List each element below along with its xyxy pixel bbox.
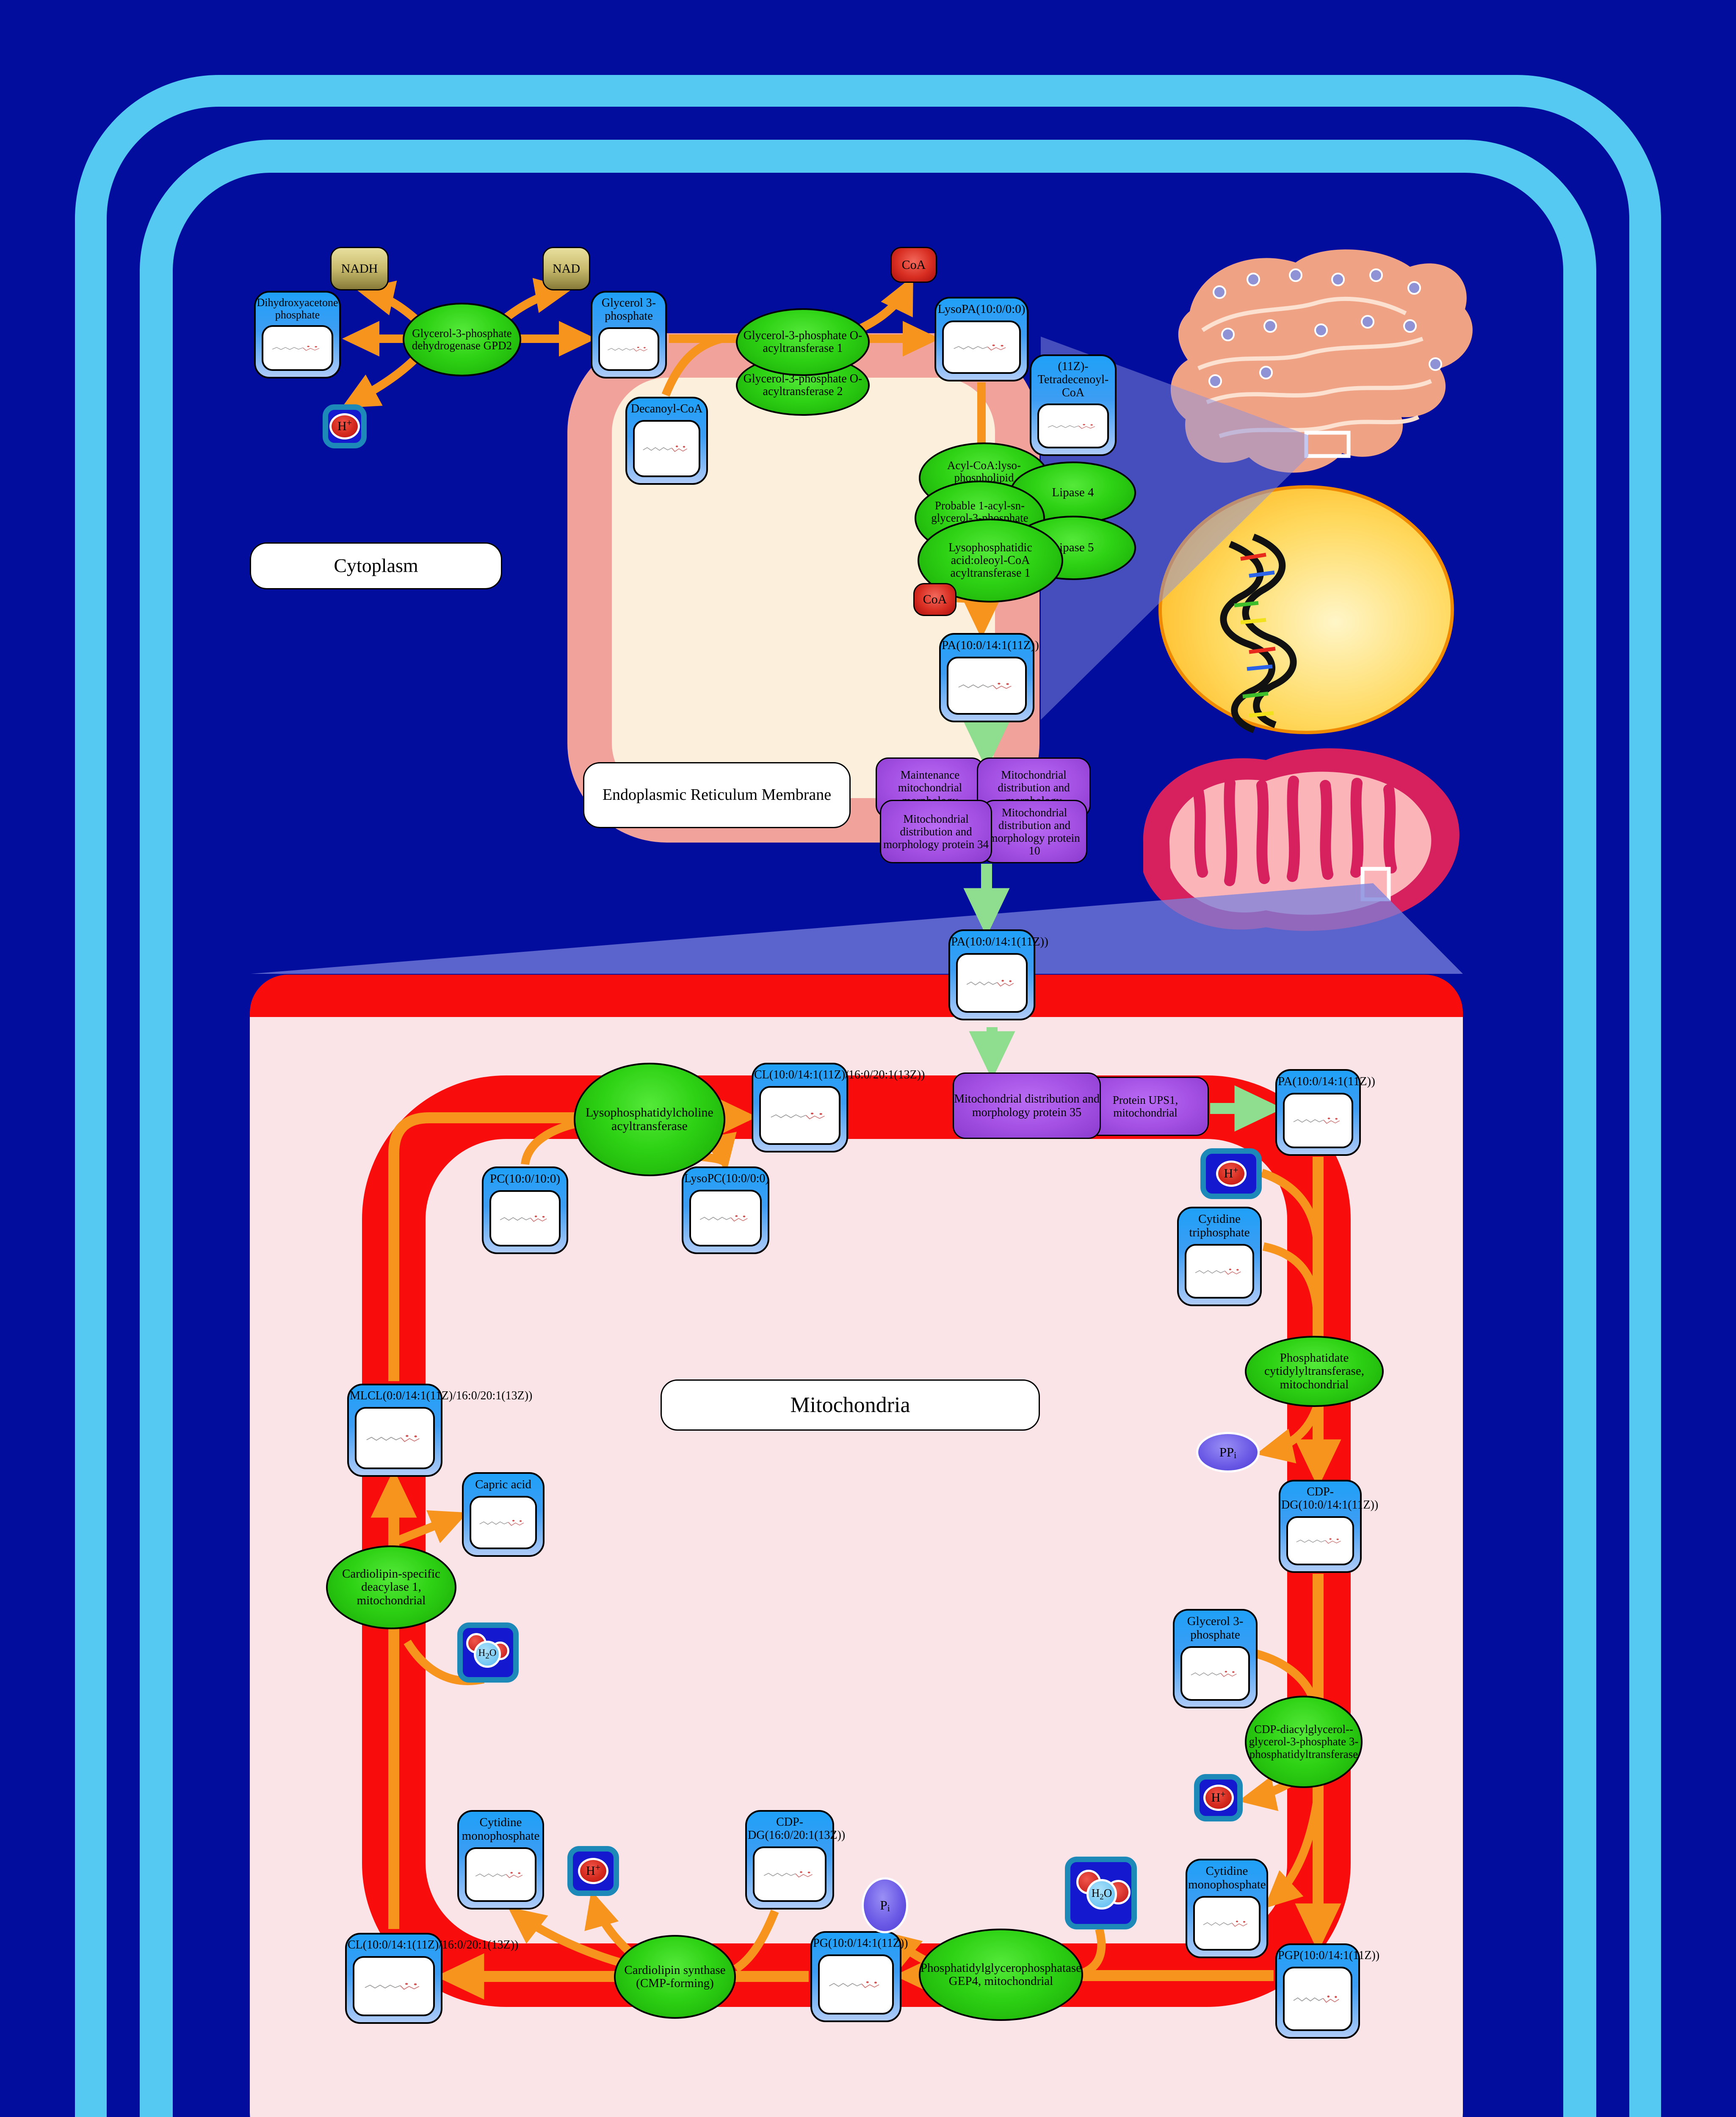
node-pgp[interactable]: PGP(10:0/14:1(11Z)) bbox=[1275, 1943, 1360, 2039]
node-g3p[interactable]: Glycerol 3-phosphate bbox=[591, 291, 667, 379]
enzyme-cld1[interactable]: Cardiolipin-specific deacylase 1, mitoch… bbox=[326, 1545, 456, 1629]
chemical-structure bbox=[753, 1846, 827, 1902]
node-title: Dihydroxyacetone phosphate bbox=[256, 293, 339, 323]
h2o-h: H bbox=[478, 1647, 486, 1658]
arrow-ctp-in bbox=[1263, 1246, 1318, 1321]
node-title: LysoPA(10:0/0:0) bbox=[936, 298, 1027, 319]
arrow-pc-in bbox=[525, 1123, 579, 1164]
complex-label: Protein UPS1, mitochondrial bbox=[1083, 1094, 1208, 1119]
chemical-structure bbox=[818, 1954, 894, 2015]
node-title: Glycerol 3-phosphate bbox=[592, 293, 665, 326]
h-plus-symbol: H+ bbox=[329, 413, 360, 439]
er-membrane-label: Endoplasmic Reticulum Membrane bbox=[583, 762, 851, 828]
enzyme-cardiolipin-synthase[interactable]: Cardiolipin synthase (CMP-forming) bbox=[614, 1935, 736, 2019]
node-title: Cytidine monophosphate bbox=[1187, 1860, 1266, 1894]
chemical-structure bbox=[759, 1086, 840, 1145]
complex-mdm35[interactable]: Mitochondrial distribution and morpholog… bbox=[953, 1072, 1101, 1139]
node-pg[interactable]: PG(10:0/14:1(11Z)) bbox=[810, 1931, 901, 2022]
enzyme-label: Glycerol-3-phosphate O-acyltransferase 1 bbox=[738, 329, 868, 355]
node-title: Cytidine monophosphate bbox=[459, 1812, 542, 1846]
node-g3p-right[interactable]: Glycerol 3-phosphate bbox=[1173, 1609, 1258, 1708]
h-plus-symbol: H+ bbox=[1216, 1161, 1247, 1187]
enzyme-label: Cardiolipin-specific deacylase 1, mitoch… bbox=[328, 1567, 455, 1607]
enzyme-label: Phosphatidate cytidylyltransferase, mito… bbox=[1247, 1351, 1382, 1391]
node-title: PA(10:0/14:1(11Z)) bbox=[941, 635, 1033, 655]
chemical-structure bbox=[353, 1956, 435, 2016]
chemical-structure bbox=[470, 1496, 537, 1549]
node-title: Decanoyl-CoA bbox=[627, 398, 706, 418]
complex-label: Mitochondrial distribution and morpholog… bbox=[983, 806, 1086, 857]
node-tetradecenoyl-coa[interactable]: (11Z)-Tetradecenoyl-CoA bbox=[1030, 354, 1117, 456]
plus-superscript: + bbox=[1220, 1789, 1225, 1800]
node-lysopc[interactable]: LysoPC(10:0/0:0) bbox=[682, 1166, 769, 1254]
node-hplus-bottom[interactable]: H+ bbox=[567, 1846, 619, 1896]
enzyme-lpcat[interactable]: Lysophosphatidylcholine acyltransferase bbox=[574, 1063, 725, 1176]
h2o-o: O bbox=[489, 1647, 497, 1658]
node-hplus-right-top[interactable]: H+ bbox=[1200, 1148, 1262, 1199]
badge-label: CoA bbox=[902, 258, 926, 272]
mitochondria-label: Mitochondria bbox=[661, 1379, 1040, 1431]
complex-label: Mitochondrial distribution and morpholog… bbox=[881, 813, 991, 851]
arrow-to-capric-acid bbox=[398, 1516, 460, 1540]
enzyme-label: Lysophosphatidic acid:oleoyl-CoA acyltra… bbox=[919, 542, 1062, 580]
arrow-to-cmp-right bbox=[1270, 1803, 1317, 1903]
water-molecule: H2O bbox=[1086, 1879, 1117, 1910]
chemical-structure bbox=[1286, 1516, 1354, 1565]
er-membrane-label-text: Endoplasmic Reticulum Membrane bbox=[603, 786, 831, 804]
h-plus-symbol: H+ bbox=[578, 1858, 608, 1884]
node-coa-top[interactable]: CoA bbox=[890, 247, 937, 283]
node-hplus-cytoplasm[interactable]: H+ bbox=[323, 404, 367, 448]
enzyme-label: Lysophosphatidylcholine acyltransferase bbox=[575, 1106, 724, 1133]
chemical-structure bbox=[956, 953, 1028, 1013]
water-molecule: H2O bbox=[474, 1641, 501, 1668]
complex-mdm10[interactable]: Mitochondrial distribution and morpholog… bbox=[981, 800, 1087, 863]
chemical-structure bbox=[262, 325, 333, 371]
arrow-to-hplus bbox=[349, 358, 416, 404]
enzyme-label: Cardiolipin synthase (CMP-forming) bbox=[616, 1964, 734, 1990]
node-dhap[interactable]: Dihydroxyacetone phosphate bbox=[254, 291, 341, 379]
node-title: CDP-DG(16:0/20:1(13Z)) bbox=[747, 1812, 832, 1845]
enzyme-label: CDP-diacylglycerol--glycerol-3-phosphate… bbox=[1247, 1723, 1361, 1760]
arrow-to-nad bbox=[505, 290, 564, 319]
node-coa-mid[interactable]: CoA bbox=[913, 583, 956, 616]
node-title: MLCL(0:0/14:1(11Z)/16:0/20:1(13Z)) bbox=[349, 1385, 441, 1405]
h-text: H bbox=[1211, 1791, 1220, 1805]
mitochondria-label-text: Mitochondria bbox=[790, 1393, 910, 1417]
enzyme-gep4[interactable]: Phosphatidylglycerophosphatase GEP4, mit… bbox=[919, 1929, 1083, 2021]
node-pi[interactable]: Pi bbox=[862, 1877, 908, 1933]
chemical-structure bbox=[1180, 1646, 1250, 1701]
arrow-hplus-right-in bbox=[1262, 1173, 1318, 1245]
plus-superscript: + bbox=[347, 417, 352, 428]
node-pa-mid[interactable]: PA(10:0/14:1(11Z)) bbox=[948, 929, 1035, 1020]
arrow-to-ppi bbox=[1264, 1405, 1318, 1452]
chemical-structure bbox=[355, 1407, 435, 1469]
node-title: LysoPC(10:0/0:0) bbox=[683, 1168, 768, 1188]
node-title: Glycerol 3-phosphate bbox=[1175, 1611, 1256, 1644]
node-cmp-bottom[interactable]: Cytidine monophosphate bbox=[457, 1810, 544, 1910]
node-decanoyl-coa[interactable]: Decanoyl-CoA bbox=[625, 397, 708, 485]
h2o-o: O bbox=[1104, 1887, 1112, 1899]
enzyme-pct[interactable]: Phosphatidate cytidylyltransferase, mito… bbox=[1245, 1336, 1384, 1407]
enzyme-label: Glycerol-3-phosphate dehydrogenase GPD2 bbox=[404, 327, 520, 352]
enzyme-gpat1[interactable]: Glycerol-3-phosphate O-acyltransferase 1 bbox=[736, 308, 870, 376]
node-nadh[interactable]: NADH bbox=[330, 247, 389, 290]
plus-superscript: + bbox=[595, 1862, 600, 1873]
ppi-subscript: i bbox=[1234, 1450, 1236, 1461]
node-cl-top[interactable]: CL(10:0/14:1(11Z)/16:0/20:1(13Z)) bbox=[752, 1063, 848, 1152]
node-hplus-right-bottom[interactable]: H+ bbox=[1194, 1774, 1243, 1821]
complex-mdm34[interactable]: Mitochondrial distribution and morpholog… bbox=[880, 800, 992, 863]
enzyme-label: Glycerol-3-phosphate O-acyltransferase 2 bbox=[738, 373, 868, 398]
chemical-structure bbox=[1283, 1093, 1353, 1148]
node-title: PA(10:0/14:1(11Z)) bbox=[950, 931, 1034, 951]
node-pc[interactable]: PC(10:0/10:0) bbox=[482, 1166, 568, 1254]
chemical-structure bbox=[598, 327, 659, 371]
node-cdpdg-bottom[interactable]: CDP-DG(16:0/20:1(13Z)) bbox=[745, 1810, 834, 1910]
ppi-text: PP bbox=[1219, 1445, 1234, 1460]
enzyme-label: Phosphatidylglycerophosphatase GEP4, mit… bbox=[921, 1962, 1081, 1988]
node-title: PA(10:0/14:1(11Z)) bbox=[1277, 1071, 1359, 1091]
chemical-structure bbox=[1193, 1896, 1261, 1951]
h-text: H bbox=[337, 419, 347, 434]
chemical-structure bbox=[947, 657, 1027, 715]
node-title: CL(10:0/14:1(11Z)/16:0/20:1(13Z)) bbox=[753, 1064, 846, 1084]
complex-label: Mitochondrial distribution and morpholog… bbox=[954, 1092, 1100, 1119]
enzyme-label: Lipase 4 bbox=[1052, 486, 1094, 499]
node-pa-er[interactable]: PA(10:0/14:1(11Z)) bbox=[939, 633, 1034, 722]
node-title: (11Z)-Tetradecenoyl-CoA bbox=[1031, 356, 1115, 402]
chemical-structure bbox=[1037, 404, 1109, 448]
node-nad[interactable]: NAD bbox=[542, 247, 590, 290]
chemical-structure bbox=[1185, 1244, 1254, 1299]
badge-label: NADH bbox=[341, 262, 378, 276]
node-title: PC(10:0/10:0) bbox=[484, 1168, 567, 1188]
node-capric-acid[interactable]: Capric acid bbox=[462, 1472, 545, 1557]
chemical-structure bbox=[465, 1847, 536, 1902]
plus-superscript: + bbox=[1233, 1165, 1238, 1176]
chemical-structure bbox=[689, 1190, 762, 1246]
h2o-subscript: 2 bbox=[485, 1652, 489, 1661]
node-title: CL(10:0/14:1(11Z)/16:0/20:1(13Z)) bbox=[347, 1935, 441, 1954]
node-title: PGP(10:0/14:1(11Z)) bbox=[1277, 1945, 1358, 1965]
h-text: H bbox=[586, 1864, 595, 1878]
pathway-diagram: Cytoplasm Endoplasmic Reticulum Membrane… bbox=[0, 0, 1736, 2117]
pi-subscript: i bbox=[887, 1903, 890, 1914]
node-title: PG(10:0/14:1(11Z)) bbox=[812, 1933, 900, 1953]
badge-label: CoA bbox=[923, 592, 947, 607]
arrow-cdpdg-bottom-in bbox=[736, 1911, 775, 1969]
enzyme-gpd2[interactable]: Glycerol-3-phosphate dehydrogenase GPD2 bbox=[403, 303, 521, 376]
node-h2o-right[interactable]: H2O bbox=[1065, 1857, 1137, 1929]
node-title: Cytidine triphosphate bbox=[1179, 1208, 1260, 1242]
arrow-to-nadh bbox=[365, 292, 417, 321]
complex-ups1[interactable]: Protein UPS1, mitochondrial bbox=[1082, 1077, 1209, 1136]
cytoplasm-label-text: Cytoplasm bbox=[334, 555, 418, 577]
node-ctp[interactable]: Cytidine triphosphate bbox=[1177, 1207, 1262, 1306]
pi-text: P bbox=[880, 1898, 887, 1913]
h2o-subscript: 2 bbox=[1100, 1893, 1104, 1901]
node-lysopa[interactable]: LysoPA(10:0/0:0) bbox=[934, 297, 1028, 381]
node-cl-bottom[interactable]: CL(10:0/14:1(11Z)/16:0/20:1(13Z)) bbox=[345, 1933, 442, 2024]
chemical-structure bbox=[633, 420, 700, 477]
cytoplasm-label: Cytoplasm bbox=[250, 542, 502, 589]
node-title: Capric acid bbox=[464, 1474, 543, 1494]
chemical-structure bbox=[942, 321, 1021, 374]
node-pa-imm[interactable]: PA(10:0/14:1(11Z)) bbox=[1275, 1069, 1361, 1156]
h-text: H bbox=[1224, 1166, 1233, 1181]
node-ppi[interactable]: PPi bbox=[1196, 1432, 1260, 1473]
arrow-decanoylcoa-in bbox=[666, 338, 723, 395]
arrow-h2o-right-in bbox=[1082, 1929, 1101, 1973]
node-cmp-right[interactable]: Cytidine monophosphate bbox=[1186, 1859, 1268, 1958]
chemical-structure bbox=[1283, 1967, 1352, 2031]
node-mlcl[interactable]: MLCL(0:0/14:1(11Z)/16:0/20:1(13Z)) bbox=[347, 1384, 442, 1477]
h-plus-symbol: H+ bbox=[1203, 1785, 1234, 1811]
node-title: CDP-DG(10:0/14:1(11Z)) bbox=[1280, 1481, 1360, 1515]
chemical-structure bbox=[489, 1190, 561, 1246]
badge-label: NAD bbox=[553, 262, 580, 276]
enzyme-pgps[interactable]: CDP-diacylglycerol--glycerol-3-phosphate… bbox=[1245, 1696, 1363, 1788]
node-h2o-left[interactable]: H2O bbox=[457, 1622, 519, 1683]
h2o-h: H bbox=[1092, 1887, 1100, 1899]
node-cdpdg-right[interactable]: CDP-DG(10:0/14:1(11Z)) bbox=[1279, 1480, 1362, 1573]
